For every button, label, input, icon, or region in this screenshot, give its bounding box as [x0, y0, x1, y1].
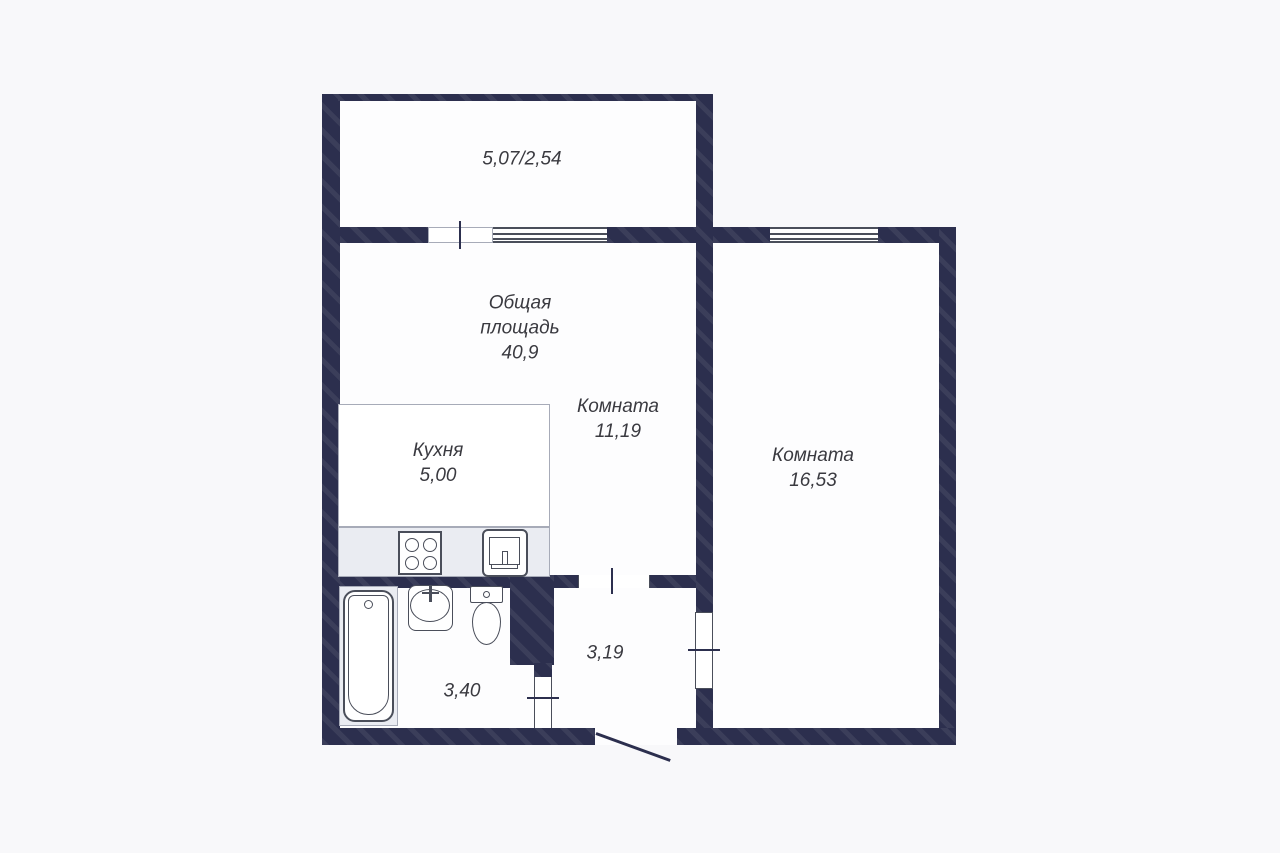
hallway-door-tick	[611, 568, 613, 594]
bathtub-inner	[348, 595, 389, 715]
bottom-wall-right	[677, 728, 956, 745]
bathroom-divider-wall-right	[650, 575, 696, 588]
room2-top-wall-left	[713, 227, 770, 243]
burner	[423, 538, 437, 552]
window-pane-line	[770, 238, 878, 240]
room2-name: Комната	[772, 443, 854, 468]
balcony-label: 5,07/2,54	[482, 147, 561, 172]
right-outer-wall	[939, 227, 956, 745]
balcony-divider-wall-right	[607, 227, 696, 243]
burner	[405, 538, 419, 552]
balcony-top-wall	[338, 94, 698, 101]
bathroom-door-stub	[534, 663, 552, 677]
living-room-window	[493, 227, 607, 243]
kitchen-name: Кухня	[413, 438, 464, 463]
washbasin-faucet-bar	[422, 592, 439, 594]
toilet-button	[483, 591, 490, 598]
room1-area: 11,19	[577, 419, 659, 444]
kitchen-sink-icon	[482, 529, 528, 577]
window-pane-line	[493, 238, 607, 240]
toilet-tank	[470, 586, 503, 603]
room2-area: 16,53	[772, 468, 854, 493]
burner	[423, 556, 437, 570]
room2-door-tick	[688, 649, 720, 651]
sink-faucet-stem	[502, 551, 508, 565]
total-area-line2: площадь	[480, 316, 559, 341]
bottom-wall-left	[322, 728, 595, 745]
bathroom-door-tick	[527, 697, 559, 699]
bathtub-drain	[364, 600, 373, 609]
room2-window	[770, 227, 878, 243]
total-area-label: Общая площадь 40,9	[480, 291, 559, 366]
kitchen-area: 5,00	[413, 463, 464, 488]
sink-faucet-base	[491, 564, 518, 569]
burner	[405, 556, 419, 570]
bathroom-door-opening	[534, 677, 552, 728]
total-area-value: 40,9	[480, 341, 559, 366]
room1-name: Комната	[577, 394, 659, 419]
stove-icon	[398, 531, 442, 575]
washbasin-icon	[408, 585, 453, 631]
hallway-label: 3,19	[587, 641, 624, 666]
bathroom-column	[510, 575, 554, 665]
window-pane-line	[493, 233, 607, 235]
room1-label: Комната 11,19	[577, 394, 659, 444]
total-area-line1: Общая	[480, 291, 559, 316]
balcony-divider-wall-left	[340, 227, 428, 243]
hallway-door-opening	[578, 575, 650, 588]
washbasin-faucet-stem	[429, 586, 432, 602]
bathroom-label: 3,40	[444, 679, 481, 704]
room2-label: Комната 16,53	[772, 443, 854, 493]
kitchen-label: Кухня 5,00	[413, 438, 464, 488]
window-pane-line	[770, 233, 878, 235]
central-wall-upper	[696, 94, 713, 613]
floor-plan: 5,07/2,54 Общая площадь 40,9 Комната 11,…	[0, 0, 1280, 853]
balcony-door-tick	[459, 221, 461, 249]
bathtub-icon	[339, 586, 398, 726]
